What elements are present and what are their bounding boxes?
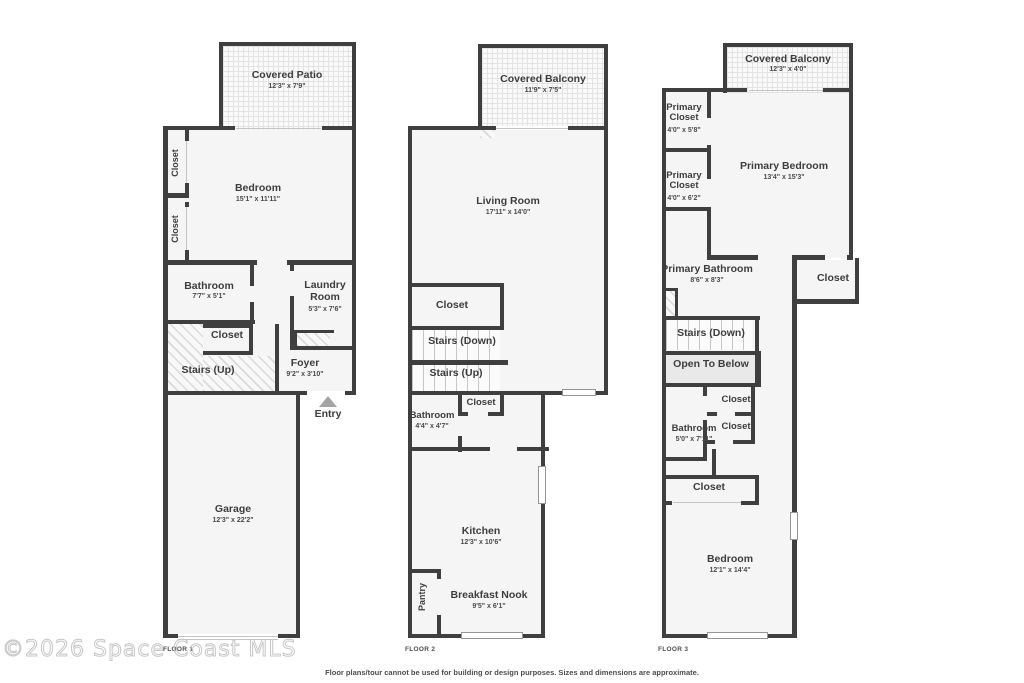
wall xyxy=(408,126,412,638)
wall xyxy=(458,412,468,416)
room-label-closet-bottom-f1: Closet xyxy=(171,215,181,243)
window xyxy=(707,632,768,639)
room-dims-primary-closet-2: 4'0" x 6'2" xyxy=(667,195,700,202)
wall xyxy=(604,44,608,130)
wall xyxy=(219,42,223,130)
wall xyxy=(163,260,257,265)
wall xyxy=(662,475,759,479)
room-label-covered-balcony-f3: Covered Balcony xyxy=(745,54,831,66)
room-label-primary-closet-2: Primary Closet xyxy=(658,171,710,192)
wall xyxy=(290,346,356,350)
window xyxy=(538,466,546,504)
room-label-covered-balcony-f2: Covered Balcony xyxy=(500,74,586,86)
wall xyxy=(675,288,678,319)
wall xyxy=(568,126,608,130)
floor-3-label: FLOOR 3 xyxy=(658,646,688,653)
wall xyxy=(163,391,307,395)
room-label-foyer: Foyer xyxy=(291,358,320,370)
wall xyxy=(707,211,711,259)
wall xyxy=(662,383,760,387)
wall xyxy=(662,351,760,355)
floor-plan-geometry xyxy=(0,0,1024,683)
hatch-area xyxy=(480,130,494,138)
floor-plan-page: { "floors": [ { "floor_label": "FLOOR 1"… xyxy=(0,0,1024,683)
wall xyxy=(662,148,711,152)
wall xyxy=(703,387,707,396)
room-label-closet-a-f3: Closet xyxy=(721,395,750,405)
wall xyxy=(408,283,504,287)
wall xyxy=(792,299,859,304)
room-dims-foyer: 9'2" x 3'10" xyxy=(286,371,323,378)
entry-arrow-icon xyxy=(319,396,337,407)
wall xyxy=(741,501,759,505)
room-label-closet-wide-f3: Closet xyxy=(693,482,725,494)
room-label-closet-b-f3: Closet xyxy=(721,422,750,432)
wall xyxy=(488,412,504,416)
room-dims-laundry: 5'3" x 7'6" xyxy=(308,306,341,313)
wall xyxy=(595,391,608,395)
room-label-closet-small-f2: Closet xyxy=(466,398,495,408)
disclaimer-text: Floor plans/tour cannot be used for buil… xyxy=(0,668,1024,677)
wall xyxy=(767,634,797,638)
door-line xyxy=(496,128,568,129)
mls-watermark: ©2026 Space Coast MLS xyxy=(2,637,297,662)
room-label-laundry: Laundry Room xyxy=(298,280,352,303)
room-dims-breakfast-nook: 9'5" x 6'1" xyxy=(472,603,505,610)
room-label-stairs-down-f3: Stairs (Down) xyxy=(677,328,745,340)
wall xyxy=(345,391,356,395)
entry-label: Entry xyxy=(315,409,342,421)
room-label-stairs-up-f2: Stairs (Up) xyxy=(429,368,482,380)
wall xyxy=(541,395,545,638)
wall xyxy=(478,126,496,130)
hatch-area xyxy=(167,324,203,391)
room-dims-bedroom-f1: 15'1" x 11'11" xyxy=(236,196,280,203)
wall xyxy=(500,283,504,330)
room-label-kitchen: Kitchen xyxy=(462,526,501,538)
wall xyxy=(712,449,716,477)
wall xyxy=(662,207,711,211)
room-label-pantry: Pantry xyxy=(418,583,428,611)
room-label-stairs-down-f2: Stairs (Down) xyxy=(428,336,496,348)
room-dims-primary-bedroom: 13'4" x 15'3" xyxy=(763,174,804,181)
room-label-primary-bedroom: Primary Bedroom xyxy=(740,161,828,173)
room-dims-primary-bathroom: 8'6" x 8'3" xyxy=(690,277,723,284)
room-dims-bedroom-f3: 12'1" x 14'4" xyxy=(709,567,750,574)
room-label-bedroom-f1: Bedroom xyxy=(235,183,281,195)
wall xyxy=(733,440,755,444)
wall xyxy=(296,395,300,638)
wall xyxy=(849,88,853,259)
wall xyxy=(723,43,727,93)
room-dims-bathroom-f3: 5'0" x 7'11" xyxy=(676,436,713,443)
door-line xyxy=(186,207,187,250)
room-label-garage: Garage xyxy=(215,504,251,516)
wall xyxy=(203,351,253,355)
wall xyxy=(549,391,563,395)
room-label-open-to-below: Open To Below xyxy=(673,359,749,371)
room-label-primary-bathroom: Primary Bathroom xyxy=(661,264,753,276)
room-label-stairs-up-f1: Stairs (Up) xyxy=(181,365,234,377)
floor-area xyxy=(666,258,792,634)
wall xyxy=(847,255,853,260)
wall xyxy=(185,183,189,193)
wall xyxy=(203,324,253,328)
wall xyxy=(287,260,356,265)
room-label-closet-f2: Closet xyxy=(436,300,468,312)
wall xyxy=(662,634,708,638)
wall xyxy=(408,447,490,451)
wall xyxy=(250,265,254,286)
wall xyxy=(185,128,189,141)
room-label-breakfast-nook: Breakfast Nook xyxy=(450,590,527,602)
room-dims-primary-closet-1: 4'0" x 5'8" xyxy=(667,127,700,134)
wall xyxy=(294,330,334,333)
window xyxy=(562,389,596,396)
room-dims-bathroom-f1: 7'7" x 5'1" xyxy=(192,293,225,300)
room-dims-living-room: 17'11" x 14'0" xyxy=(486,209,531,216)
wall xyxy=(849,43,853,93)
wall xyxy=(408,634,462,638)
wall xyxy=(408,126,478,130)
room-label-bathroom-f1: Bathroom xyxy=(184,281,234,293)
wall xyxy=(662,501,672,505)
wall xyxy=(458,395,462,412)
wall xyxy=(662,88,747,92)
wall xyxy=(757,351,761,387)
wall xyxy=(163,126,235,130)
room-label-bathroom-f2: Bathroom xyxy=(410,411,455,421)
wall xyxy=(322,126,356,130)
room-label-closet-right-f3: Closet xyxy=(817,273,849,285)
door-line xyxy=(673,502,741,503)
room-label-closet-top-f1: Closet xyxy=(171,149,181,177)
room-dims-covered-balcony-f3: 12'3" x 4'0" xyxy=(769,66,806,73)
window xyxy=(461,632,523,639)
wall xyxy=(792,255,797,638)
wall xyxy=(478,44,482,130)
wall xyxy=(662,457,707,461)
room-dims-bathroom-f2: 4'4" x 4'7" xyxy=(415,423,448,430)
wall xyxy=(522,634,545,638)
wall xyxy=(408,360,508,365)
wall xyxy=(855,258,859,303)
wall xyxy=(707,412,717,416)
wall xyxy=(517,447,549,451)
room-dims-garage: 12'3" x 22'2" xyxy=(212,517,253,524)
door-line xyxy=(236,128,321,129)
room-label-primary-closet-1: Primary Closet xyxy=(658,103,710,124)
wall xyxy=(408,326,504,330)
wall xyxy=(185,250,189,260)
wall xyxy=(437,569,441,579)
wall xyxy=(163,193,189,198)
room-label-bathroom-f3: Bathroom xyxy=(672,424,717,434)
room-dims-covered-patio: 12'3" x 7'9" xyxy=(268,83,305,90)
wall xyxy=(408,391,549,395)
wall xyxy=(275,324,279,395)
room-dims-covered-balcony-f2: 11'9" x 7'5" xyxy=(525,87,562,94)
door-line xyxy=(186,141,187,183)
wall xyxy=(707,255,758,260)
room-label-covered-patio: Covered Patio xyxy=(252,70,323,82)
wall xyxy=(735,412,755,416)
wall xyxy=(723,43,853,47)
wall xyxy=(437,615,441,638)
wall xyxy=(478,44,608,48)
wall xyxy=(250,302,254,322)
wall xyxy=(290,265,294,271)
wall xyxy=(219,42,356,46)
door-line xyxy=(749,90,823,91)
floor-2-label: FLOOR 2 xyxy=(405,646,435,653)
room-label-living-room: Living Room xyxy=(476,196,540,208)
wall xyxy=(294,330,297,346)
hatch-area xyxy=(297,333,330,346)
wall xyxy=(163,126,168,638)
room-label-closet-mid-f1: Closet xyxy=(211,330,243,342)
window xyxy=(790,512,798,540)
wall xyxy=(352,42,356,130)
wall xyxy=(604,126,608,395)
room-label-bedroom-f3: Bedroom xyxy=(707,554,753,566)
room-dims-kitchen: 12'3" x 10'6" xyxy=(460,539,501,546)
